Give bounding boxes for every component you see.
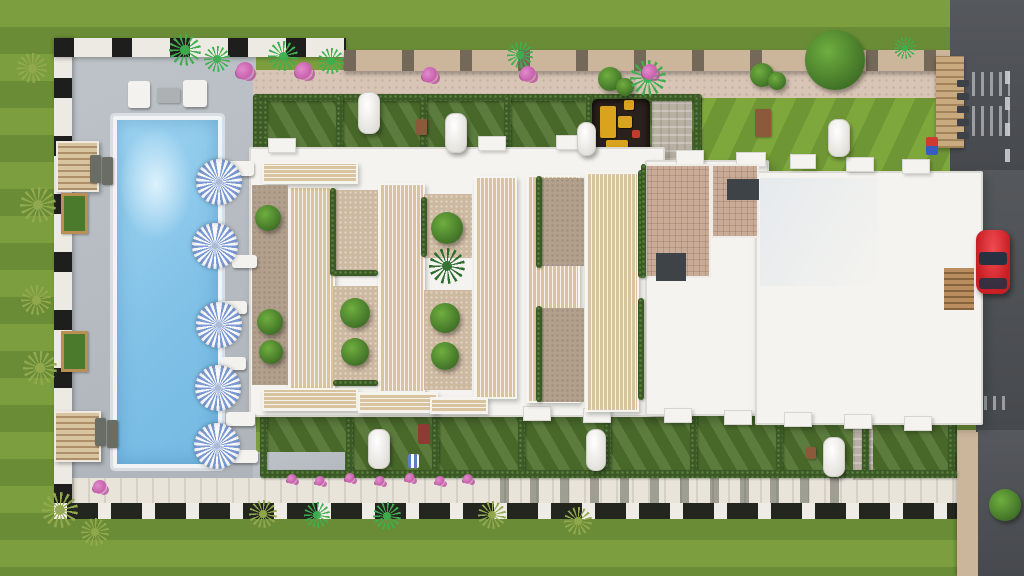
terrace-pergola-vertical-2 — [378, 183, 425, 393]
pool-umbrella-2 — [192, 223, 238, 269]
palm-tree-bright-1 — [169, 34, 201, 66]
palm-tree-outer-1 — [17, 53, 47, 83]
flower-bed-pink-5 — [642, 64, 658, 80]
patio-cylinder-4 — [828, 119, 850, 157]
patio-cylinder-6 — [586, 429, 606, 471]
palm-tree-bright-4 — [318, 48, 344, 74]
patio-chair-brown-2 — [416, 119, 427, 135]
playground-equipment-yellow-4 — [624, 100, 634, 110]
bike-rack-4 — [957, 119, 969, 126]
palm-tree-outer-2 — [20, 187, 56, 223]
terrace-hedge-8 — [638, 298, 644, 400]
patio-lounger-red — [418, 424, 430, 444]
flower-bed-pink-2 — [295, 62, 313, 80]
palm-tree-bright-9 — [373, 502, 401, 530]
round-tree-2 — [257, 309, 283, 335]
round-tree-4 — [340, 298, 370, 328]
flower-bed-pink-9 — [345, 473, 355, 483]
flower-bed-pink-1 — [236, 62, 254, 80]
roof-balcony-bottom-1 — [523, 406, 551, 421]
patio-cylinder-5 — [368, 429, 390, 469]
bike-rack-5 — [957, 132, 969, 139]
round-tree-9 — [805, 30, 865, 90]
terrace-pergola-vertical-3 — [474, 176, 517, 399]
roof-balcony-top-8 — [902, 159, 930, 174]
flower-bed-pink-6 — [93, 480, 107, 494]
bottom-garden-divider-hedge-1 — [260, 408, 267, 474]
terrace-pergola-horizontal-3 — [358, 392, 438, 413]
bike-rack-2 — [957, 93, 969, 100]
right-wall-beige — [957, 430, 979, 576]
pool-table — [157, 88, 180, 103]
patio-cylinder-1 — [358, 92, 380, 134]
flower-bed-pink-10 — [375, 476, 385, 486]
pool-umbrella-4 — [195, 365, 241, 411]
pergola-lounge-2 — [54, 411, 101, 462]
planter-box-1 — [61, 193, 88, 234]
terrace-gravel-tan-1 — [333, 190, 378, 274]
roof-balcony-bottom-3 — [664, 408, 692, 423]
round-tree-3 — [259, 340, 283, 364]
palm-tree-bright-7 — [894, 37, 916, 59]
palm-tree-outer-5 — [42, 492, 78, 528]
terrace-hedge-3 — [421, 197, 427, 257]
patio-cylinder-3 — [577, 122, 596, 156]
bottom-garden-divider-hedge-2 — [346, 408, 353, 474]
terrace-hedge-9 — [641, 164, 646, 278]
palm-tree-bright-8 — [304, 502, 330, 528]
terrace-pergola-vertical-5 — [585, 172, 639, 412]
walkway-pergola-bars — [500, 478, 860, 503]
entry-steps — [944, 268, 974, 310]
flower-bed-pink-11 — [405, 473, 415, 483]
palm-tree-outer-9 — [564, 507, 592, 535]
terrace-hedge-1 — [330, 188, 336, 276]
tiled-roof-2 — [711, 164, 759, 238]
pool-umbrella-5 — [194, 423, 240, 469]
terrace-pergola-horizontal-2 — [262, 388, 358, 411]
sun-lounger-dark-3 — [95, 418, 106, 446]
palm-tree-bright-2 — [204, 46, 230, 72]
aerial-render-residential-complex — [0, 0, 1024, 576]
flower-bed-pink-8 — [315, 476, 325, 486]
palm-tree-outer-6 — [81, 518, 109, 546]
road-lane-line — [1005, 70, 1010, 162]
roof-shade — [760, 178, 878, 286]
round-tree-6 — [431, 212, 463, 244]
sun-lounger-white-4 — [232, 255, 257, 268]
flower-bed-pink-12 — [435, 476, 445, 486]
terrace-gravel-gray-3 — [540, 308, 584, 402]
planter-box-2 — [61, 331, 88, 372]
roof-balcony-top-7 — [846, 157, 874, 172]
roof-balcony-top-2 — [478, 136, 506, 151]
flower-bed-pink-3 — [422, 67, 438, 83]
palm-tree-terrace — [429, 248, 465, 284]
roof-balcony-top-6 — [790, 154, 816, 169]
sun-lounger-dark-4 — [107, 420, 118, 448]
round-tree-10 — [989, 489, 1021, 521]
terrace-pergola-horizontal-4 — [430, 397, 488, 414]
round-tree-5 — [341, 338, 369, 366]
roof-balcony-bottom-4 — [724, 410, 752, 425]
palm-tree-outer-4 — [23, 351, 57, 385]
playground-equipment-yellow-2 — [618, 116, 632, 128]
bike-rack-3 — [957, 106, 969, 113]
sun-lounger-white-1 — [128, 81, 150, 108]
bottom-garden-hedge-border — [260, 470, 957, 478]
sun-lounger-dark-1 — [90, 155, 101, 183]
roof-balcony-top-1 — [268, 138, 296, 153]
bike-rack-1 — [957, 80, 969, 87]
pool-highlight — [120, 128, 192, 240]
terrace-hedge-6 — [536, 306, 542, 402]
bottom-wall — [54, 503, 958, 519]
flower-bed-pink-4 — [520, 66, 536, 82]
roof-vent-1 — [727, 179, 759, 200]
terrace-hedge-2 — [333, 270, 378, 276]
road-2 — [976, 170, 1024, 432]
palm-tree-outer-7 — [249, 500, 277, 528]
sun-lounger-white-2 — [183, 80, 207, 107]
terrace-gravel-gray-2 — [540, 178, 584, 266]
playground-equipment-yellow-1 — [600, 106, 616, 138]
round-tree-8 — [431, 342, 459, 370]
flower-bed-pink-13 — [463, 474, 473, 484]
terrace-hedge-4 — [333, 380, 378, 386]
roof-balcony-bottom-5 — [784, 412, 812, 427]
roof-balcony-bottom-6 — [844, 414, 872, 429]
palm-tree-outer-3 — [21, 285, 51, 315]
roof-vent-2 — [656, 253, 686, 281]
playground-equipment-red — [632, 130, 640, 138]
palm-tree-bright-3 — [268, 41, 298, 71]
palm-tree-bright-5 — [507, 42, 533, 68]
bottom-garden-divider-hedge-3 — [432, 408, 439, 474]
patio-chair-brown-3 — [806, 447, 816, 459]
patio-chair-brown-1 — [755, 109, 771, 137]
pool-umbrella-3 — [196, 302, 242, 348]
roof-balcony-bottom-7 — [904, 416, 932, 431]
patio-cylinder-2 — [445, 113, 467, 153]
round-tree-14 — [768, 72, 786, 90]
terrace-pergola-horizontal-1 — [262, 162, 358, 184]
roof-balcony-top-4 — [676, 150, 704, 165]
terrace-pergola-vertical-1 — [288, 186, 335, 390]
patio-chair-redblue — [926, 137, 938, 155]
patio-cylinder-7 — [823, 437, 845, 477]
sun-lounger-dark-2 — [102, 157, 113, 185]
sun-lounger-white-7 — [226, 412, 255, 426]
terrace-hedge-5 — [536, 176, 542, 268]
patio-lounger-blue — [408, 454, 419, 468]
round-tree-1 — [255, 205, 281, 231]
palm-tree-outer-8 — [478, 501, 506, 529]
pool-umbrella-1 — [196, 159, 242, 205]
top-garden-divider-hedge-6 — [694, 96, 701, 158]
parked-car — [976, 230, 1010, 294]
flower-bed-pink-7 — [287, 474, 297, 484]
round-tree-7 — [430, 303, 460, 333]
